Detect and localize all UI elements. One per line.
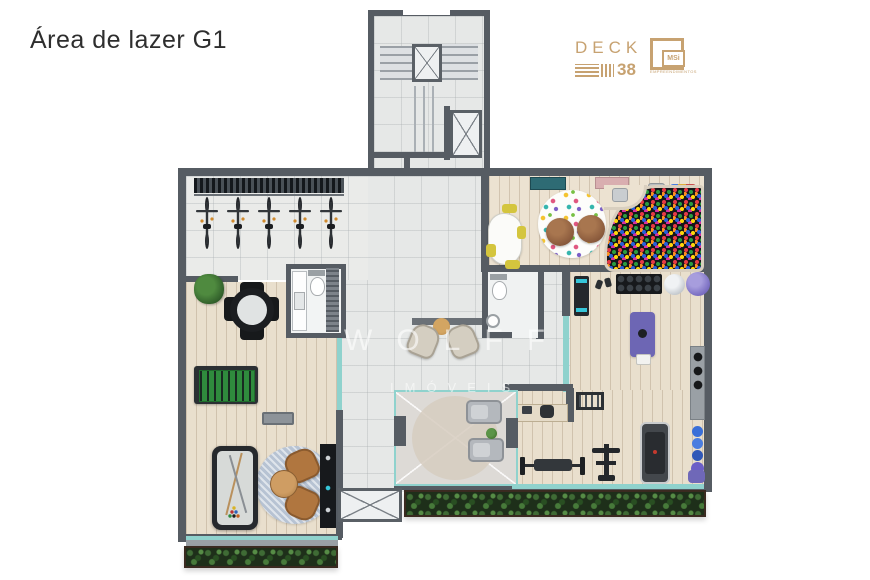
core-inner-wall: [374, 152, 448, 158]
laptop: [522, 406, 532, 414]
barbell-plate: [580, 457, 585, 475]
terrace-plant: [486, 428, 497, 439]
kids-chair: [486, 244, 496, 257]
gym-board-accent: [576, 279, 587, 283]
machine-base: [598, 475, 615, 481]
foosball-field: [199, 370, 255, 402]
dumbbell-rack: [616, 274, 662, 294]
treadmill-dot: [653, 450, 657, 454]
bicycle-icon: [287, 196, 313, 250]
desk-chair: [540, 405, 554, 418]
kids-chair: [517, 226, 526, 239]
games-glass-door: [337, 334, 342, 410]
plant: [194, 274, 224, 304]
bike-row: [190, 196, 348, 252]
gym-ball-purple: [686, 272, 710, 296]
machine-arms: [596, 461, 616, 465]
bicycle-icon: [318, 196, 344, 250]
deck-logo-number: 38: [617, 60, 636, 80]
kids-chair: [502, 204, 517, 213]
outer-wall-right: [704, 168, 712, 492]
page-title: Área de lazer G1: [30, 26, 227, 55]
squat-rack: [576, 392, 604, 410]
terrace-door-jamb: [506, 418, 518, 448]
deck-bars-icon: [601, 64, 614, 77]
bench: [262, 412, 294, 425]
medicine-ball: [692, 438, 703, 449]
bar-counter: [320, 444, 336, 528]
hedge-planter-left: [184, 546, 338, 568]
kids-chair: [505, 260, 520, 269]
hedge-planter-right: [404, 490, 706, 517]
toy-cabinet: [530, 177, 566, 190]
barbell-plate: [520, 457, 525, 475]
core-top-recess: [403, 10, 450, 15]
bean-bag: [577, 215, 605, 243]
kids-table: [488, 213, 522, 265]
stairs-right: [442, 44, 478, 80]
toilet-tank: [490, 274, 507, 280]
medicine-ball: [692, 450, 703, 461]
bathroom-a-sink: [294, 292, 305, 310]
msi-logo-text: MSi: [662, 50, 685, 67]
step-block: [636, 354, 651, 365]
bicycle-icon: [194, 196, 220, 250]
gym-left-wall: [562, 272, 570, 316]
gym-ball-silver: [664, 274, 685, 295]
floor-plan-page: Área de lazer G1 DECK 38 MSi EMPREENDIME…: [0, 0, 870, 580]
deck-boards-icon: [575, 64, 599, 77]
bicycle-icon: [225, 196, 251, 250]
shaft-open-below: [338, 488, 402, 522]
dining-table-top: [237, 295, 267, 325]
gym-board-accent: [576, 308, 587, 312]
lounger: [468, 438, 504, 462]
watermark-line2: IMÓVEIS: [390, 380, 521, 395]
coffee-table: [270, 470, 298, 498]
watermark-line1: WOLFF: [344, 324, 569, 358]
core-corridor-lines: [414, 86, 440, 152]
bean-bag: [546, 218, 574, 246]
duct-shaft: [326, 268, 339, 332]
msi-logo: MSi EMPREENDIMENTOS: [650, 38, 682, 74]
machine-handles: [592, 448, 620, 453]
lounger: [466, 400, 502, 424]
deck-logo-text: DECK: [575, 38, 643, 58]
pool-balls-rack: [226, 505, 242, 519]
msi-logo-subtext: EMPREENDIMENTOS: [650, 69, 684, 74]
toilet-bowl: [310, 277, 325, 296]
toilet-bowl: [492, 281, 507, 300]
hand-weight: [638, 329, 647, 338]
bicycle-icon: [256, 196, 282, 250]
rolled-mat: [688, 470, 705, 483]
storage-shelf: [690, 346, 705, 420]
stairs-left: [380, 46, 412, 80]
deck38-logo: DECK 38: [575, 38, 643, 80]
outer-wall-left: [178, 168, 186, 542]
elevator-1: [412, 44, 442, 82]
terrace-door-jamb: [394, 416, 406, 446]
elevator-2: [450, 110, 482, 158]
outer-wall-top: [178, 168, 712, 176]
toilet-tank: [308, 270, 325, 276]
weight-bench: [534, 459, 572, 471]
gym-glass-wall: [512, 484, 704, 489]
toy-bin: [612, 188, 628, 202]
medicine-ball: [692, 426, 703, 437]
bike-wall-rack: [194, 178, 344, 193]
